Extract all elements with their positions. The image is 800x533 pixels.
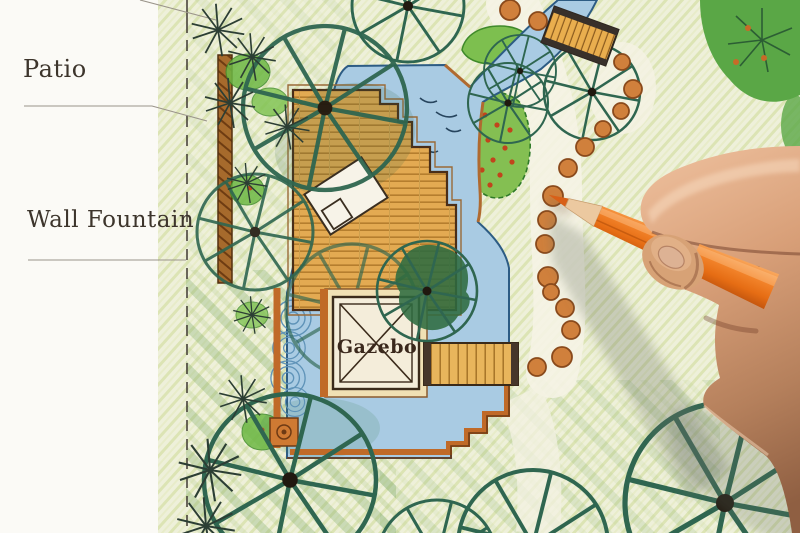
boardwalk [424,343,518,385]
landscape-plan-photo: Patio Wall Fountain Gazebo [0,0,800,533]
wall-fountain-label: Wall Fountain [27,207,194,233]
gazebo-label: Gazebo [330,336,424,358]
patio-label: Patio [23,55,87,83]
garden-plan-drawing [0,0,800,533]
